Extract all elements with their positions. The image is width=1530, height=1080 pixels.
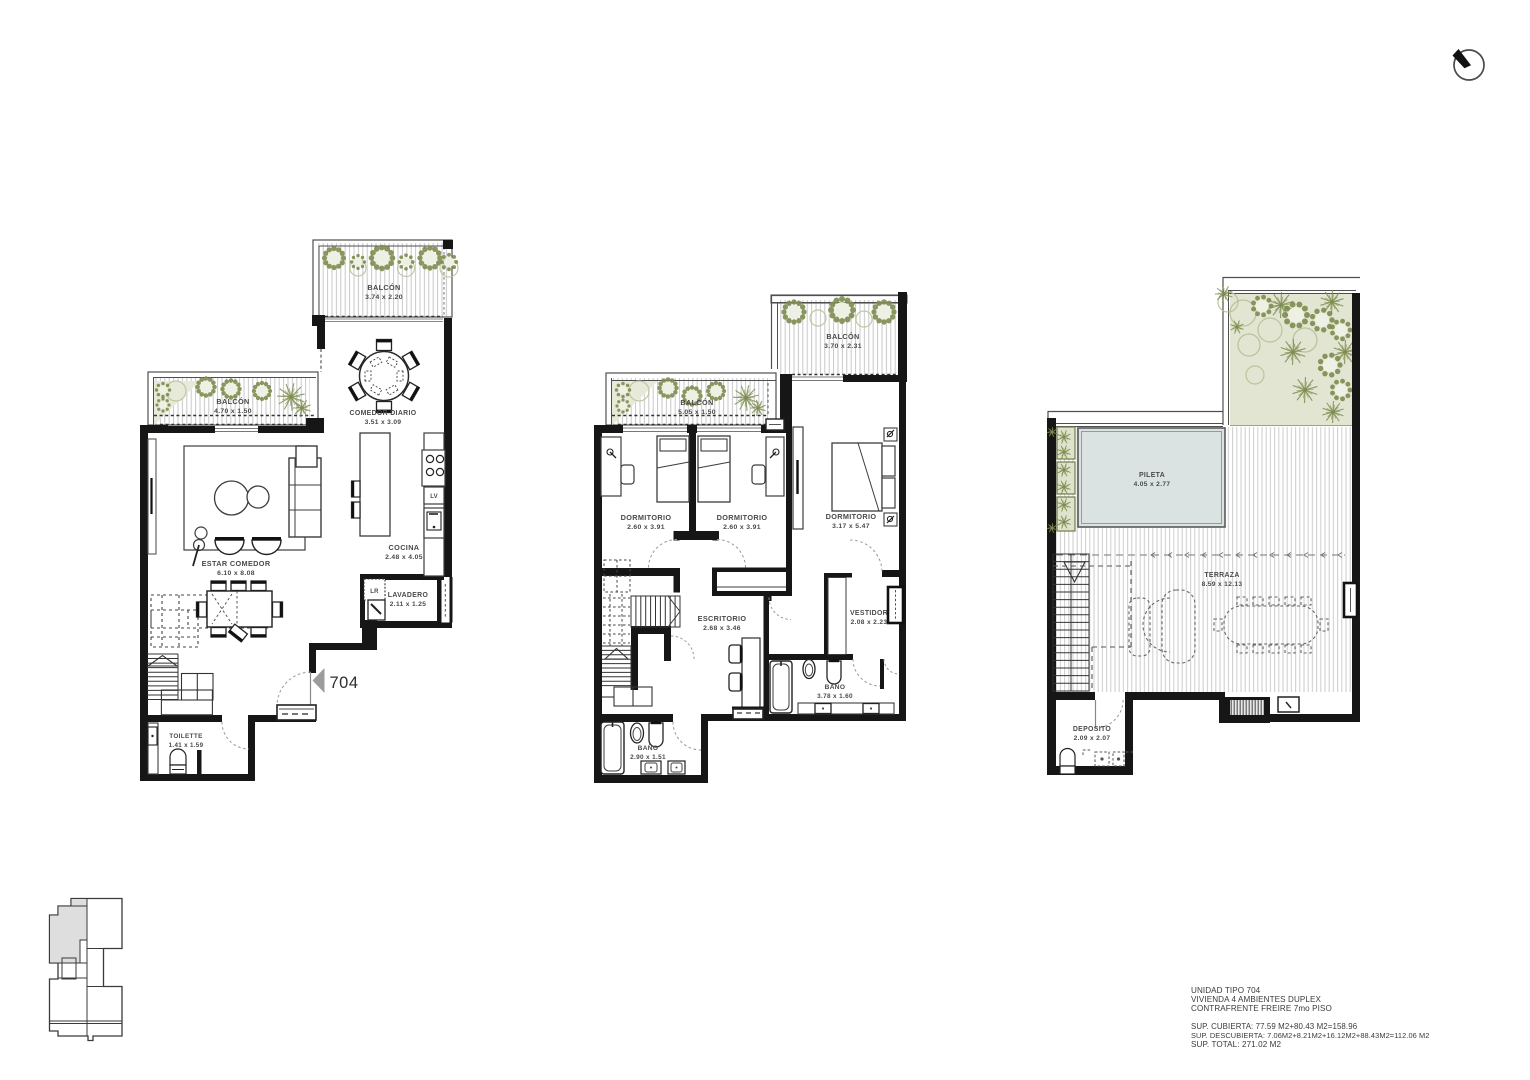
svg-text:ESCRITORIO: ESCRITORIO: [698, 614, 747, 623]
svg-text:COMEDOR DIARIO: COMEDOR DIARIO: [350, 410, 417, 417]
svg-text:704: 704: [329, 674, 358, 692]
svg-text:1.41 x 1.59: 1.41 x 1.59: [169, 742, 204, 749]
svg-text:BAÑO: BAÑO: [638, 743, 659, 752]
svg-text:CONTRAFRENTE FREIRE 7mo PISO: CONTRAFRENTE FREIRE 7mo PISO: [1191, 1004, 1332, 1013]
svg-text:LV: LV: [430, 494, 438, 500]
svg-text:SUP. DESCUBIERTA: 7.06M2+8.21M: SUP. DESCUBIERTA: 7.06M2+8.21M2+16.12M2+…: [1191, 1031, 1430, 1040]
svg-text:2.09 x 2.07: 2.09 x 2.07: [1074, 735, 1111, 742]
svg-text:ESTAR COMEDOR: ESTAR COMEDOR: [202, 559, 271, 568]
svg-text:2.60 x 3.91: 2.60 x 3.91: [723, 524, 761, 531]
svg-text:BALCÓN: BALCÓN: [826, 332, 859, 341]
svg-text:3.74 x 2.20: 3.74 x 2.20: [365, 294, 403, 301]
svg-text:4.70 x 1.50: 4.70 x 1.50: [214, 408, 252, 415]
svg-text:2.60 x 3.91: 2.60 x 3.91: [627, 524, 665, 531]
svg-text:3.17 x 5.47: 3.17 x 5.47: [832, 523, 870, 530]
svg-text:TOILETTE: TOILETTE: [169, 733, 203, 740]
svg-text:UNIDAD TIPO 704: UNIDAD TIPO 704: [1191, 986, 1261, 995]
svg-text:SUP. TOTAL: 271.02 M2: SUP. TOTAL: 271.02 M2: [1191, 1040, 1282, 1049]
svg-text:VESTIDOR: VESTIDOR: [850, 610, 888, 617]
svg-text:DEPOSITO: DEPOSITO: [1073, 726, 1112, 733]
svg-text:BALCÓN: BALCÓN: [216, 397, 249, 406]
svg-text:3.51 x 3.09: 3.51 x 3.09: [365, 419, 402, 426]
svg-text:2.48 x 4.05: 2.48 x 4.05: [385, 554, 423, 561]
svg-text:BAÑO: BAÑO: [825, 682, 846, 691]
svg-text:2.68 x 3.46: 2.68 x 3.46: [703, 625, 741, 632]
svg-text:5.05 x 1.50: 5.05 x 1.50: [678, 409, 716, 416]
svg-text:VIVIENDA 4 AMBIENTES DUPLEX: VIVIENDA 4 AMBIENTES DUPLEX: [1191, 995, 1321, 1004]
svg-text:SUP. CUBIERTA: 77.59 M2+80.43: SUP. CUBIERTA: 77.59 M2+80.43 M2=158.96: [1191, 1022, 1358, 1031]
svg-text:TERRAZA: TERRAZA: [1204, 572, 1239, 579]
svg-text:2.11 x 1.25: 2.11 x 1.25: [390, 601, 426, 608]
svg-text:3.70 x 2.31: 3.70 x 2.31: [824, 343, 862, 350]
svg-text:3.78 x 1.60: 3.78 x 1.60: [817, 693, 853, 700]
svg-text:LAVADERO: LAVADERO: [388, 592, 429, 599]
svg-text:8.59 x 12.13: 8.59 x 12.13: [1202, 581, 1243, 588]
svg-text:DORMITORIO: DORMITORIO: [717, 513, 768, 522]
svg-text:LR: LR: [370, 589, 379, 595]
svg-text:2.90 x 1.51: 2.90 x 1.51: [630, 754, 666, 761]
svg-text:PILETA: PILETA: [1139, 472, 1165, 479]
svg-text:DORMITORIO: DORMITORIO: [826, 512, 877, 521]
svg-text:DORMITORIO: DORMITORIO: [621, 513, 672, 522]
svg-text:COCINA: COCINA: [389, 543, 420, 552]
svg-text:6.10 x 8.08: 6.10 x 8.08: [217, 570, 255, 577]
svg-text:2.08 x 2.23: 2.08 x 2.23: [851, 619, 888, 626]
svg-text:BALCÓN: BALCÓN: [367, 283, 400, 292]
svg-text:BALCÓN: BALCÓN: [680, 398, 713, 407]
svg-text:4.05 x 2.77: 4.05 x 2.77: [1134, 481, 1171, 488]
